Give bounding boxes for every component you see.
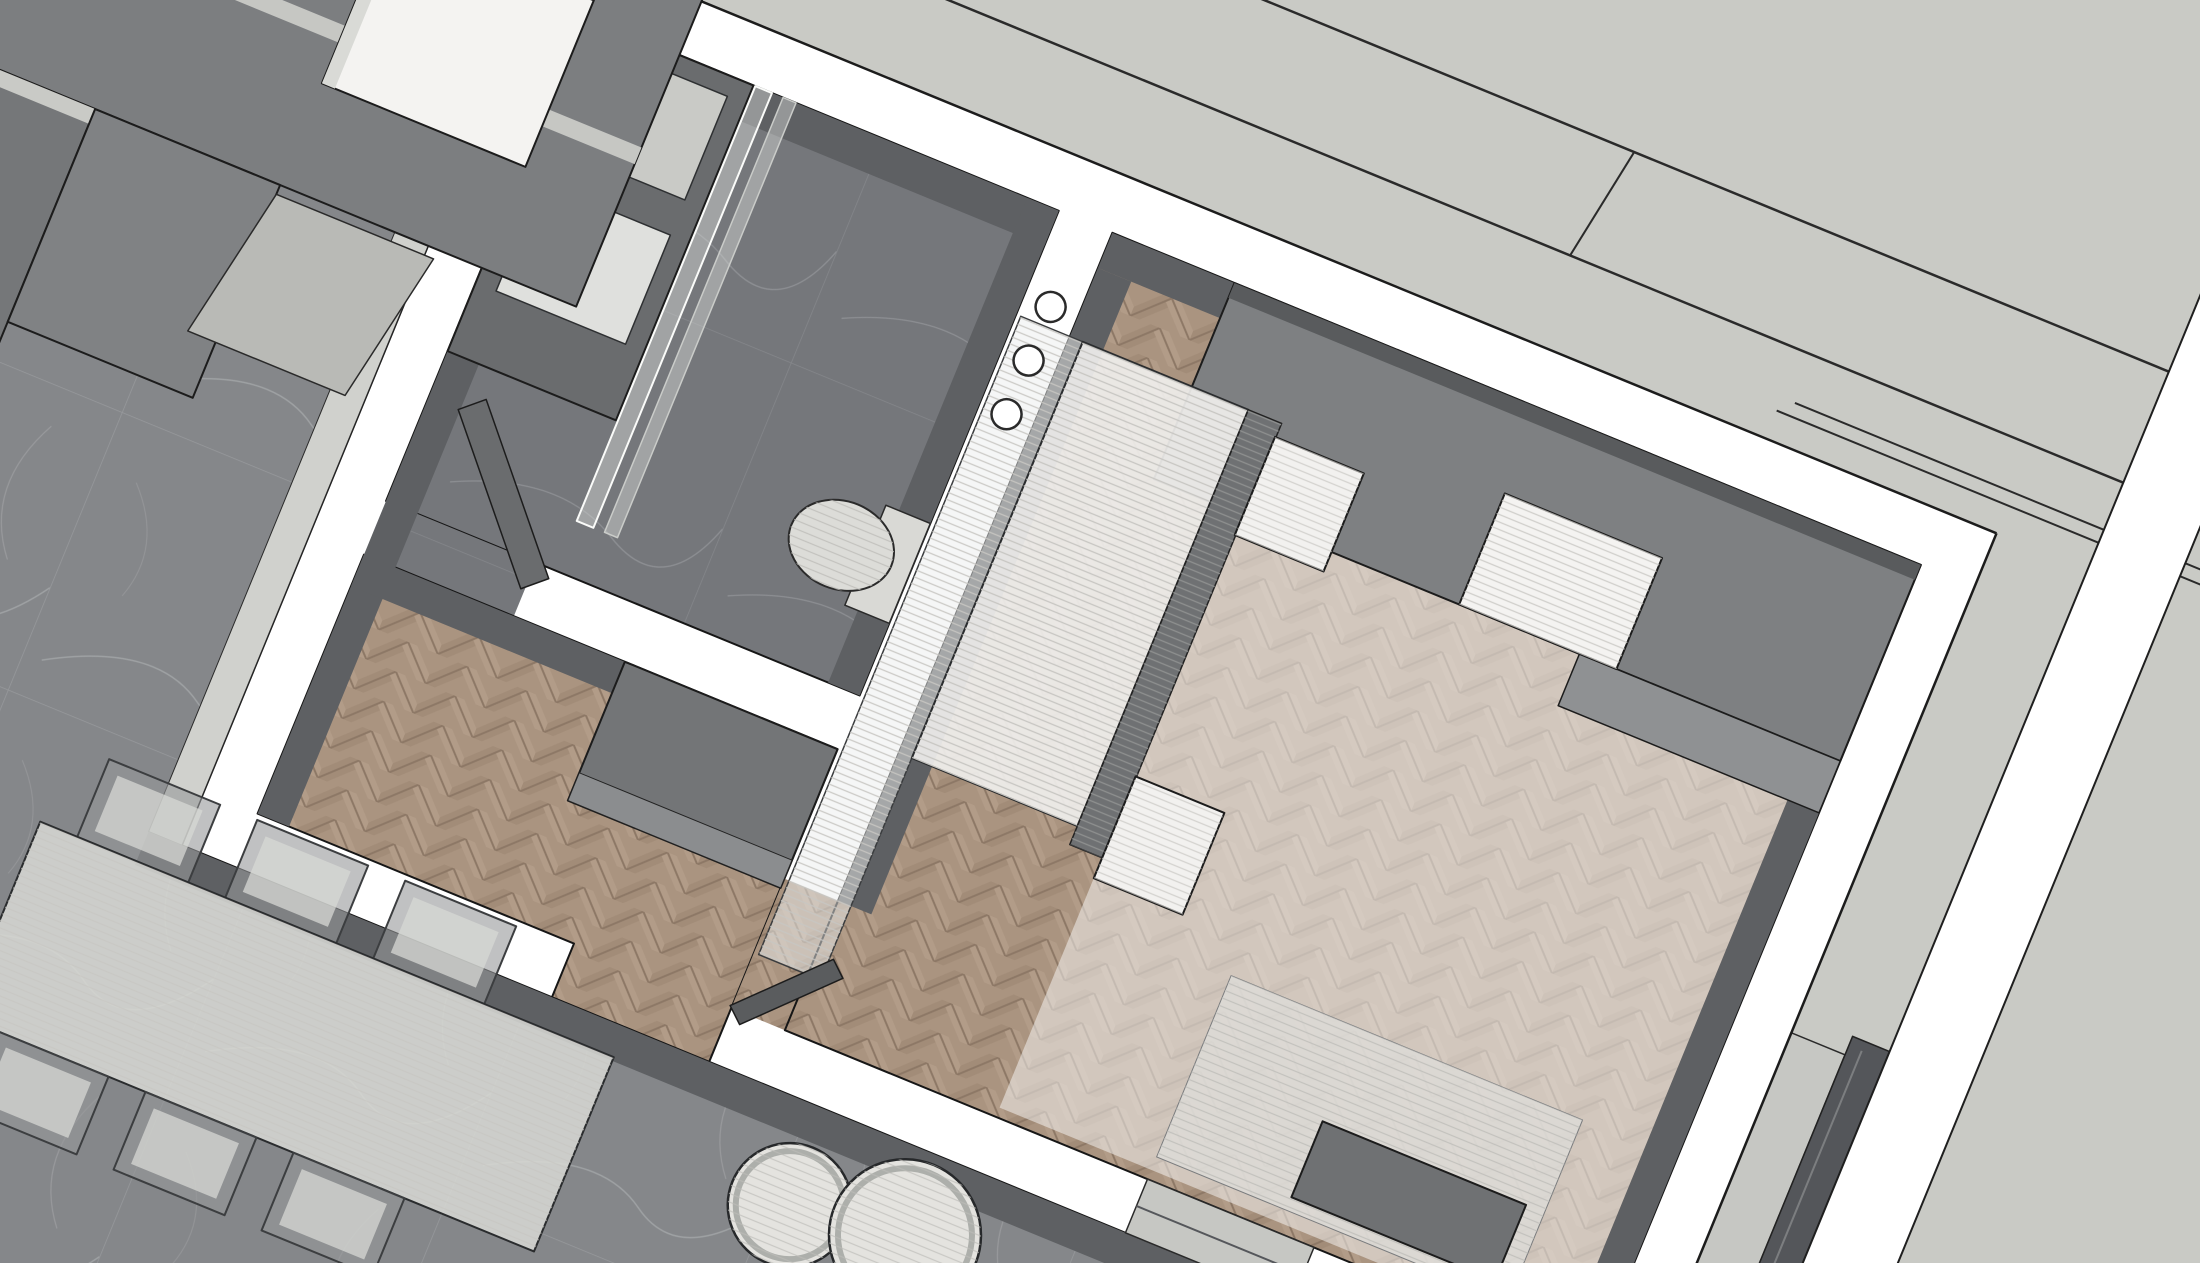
rotated-plan-group <box>0 0 2200 1263</box>
duct-circle-1 <box>1031 287 1070 326</box>
model-viewport[interactable] <box>0 0 2200 1263</box>
floor-plan-3d-render <box>0 0 2200 1263</box>
